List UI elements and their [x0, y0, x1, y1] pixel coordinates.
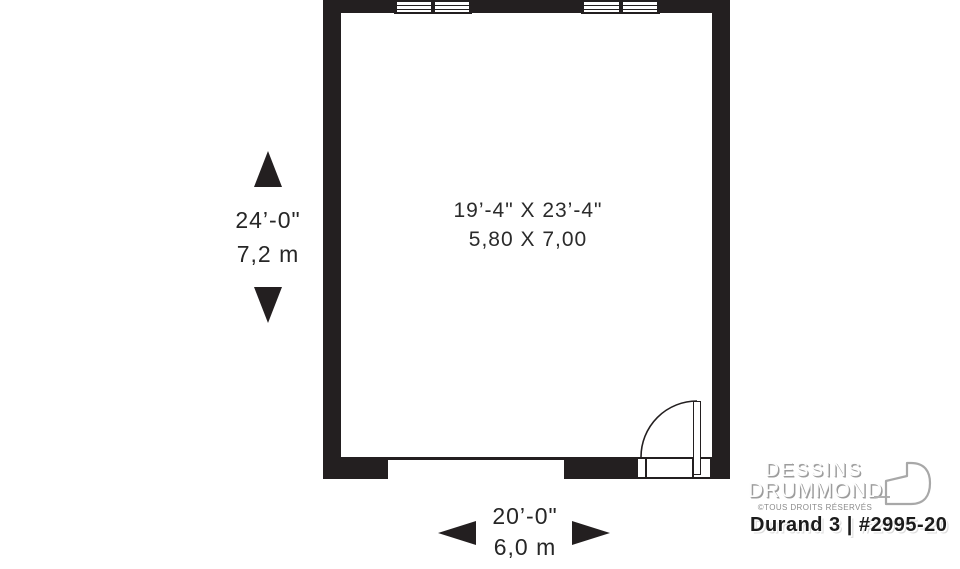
horizontal-dimension-label: 20’-0" 6,0 m [462, 501, 588, 563]
horizontal-dimension-metric: 6,0 m [462, 532, 588, 563]
room-dimensions-metric: 5,80 X 7,00 [378, 225, 678, 254]
wall-right [712, 0, 730, 479]
window-frame-bar [469, 0, 472, 14]
horizontal-dimension-imperial: 20’-0" [462, 501, 588, 532]
wall-left [323, 0, 341, 479]
arrow-down-icon [254, 287, 282, 323]
window-symbol-left [394, 0, 472, 14]
wall-bottom-left-segment [323, 457, 388, 479]
wall-top [323, 0, 730, 13]
vertical-dimension-imperial: 24’-0" [218, 203, 318, 237]
room-dimensions-label: 19’-4" X 23’-4" 5,80 X 7,00 [378, 196, 678, 254]
door-jamb-line [645, 459, 647, 477]
brand-block: DESSINS DRUMMOND ©TOUS DROITS RÉSERVÉS D… [748, 458, 948, 563]
window-frame-bar [657, 0, 660, 14]
window-frame-bar [581, 0, 584, 14]
drummond-d-logo-icon [880, 458, 932, 510]
arrow-up-icon [254, 151, 282, 187]
arrow-right-icon [572, 521, 610, 545]
window-mullion-bar [619, 0, 623, 14]
window-frame-bar [394, 0, 397, 14]
door-leaf [693, 401, 701, 475]
floor-plan-canvas: 19’-4" X 23’-4" 5,80 X 7,00 24’-0" 7,2 m… [0, 0, 960, 569]
room-dimensions-imperial: 19’-4" X 23’-4" [378, 196, 678, 225]
window-mullion-bar [431, 0, 435, 14]
garage-door-opening-header [388, 457, 564, 460]
vertical-dimension-label: 24’-0" 7,2 m [218, 203, 318, 271]
copyright-notice: ©TOUS DROITS RÉSERVÉS [748, 503, 882, 512]
brand-name-line2: DRUMMOND [748, 479, 880, 503]
window-symbol-right [581, 0, 660, 14]
vertical-dimension-metric: 7,2 m [218, 237, 318, 271]
wall-bottom-mid-segment [564, 457, 636, 479]
plan-id-label: Durand 3 | #2995-20 [750, 514, 948, 537]
